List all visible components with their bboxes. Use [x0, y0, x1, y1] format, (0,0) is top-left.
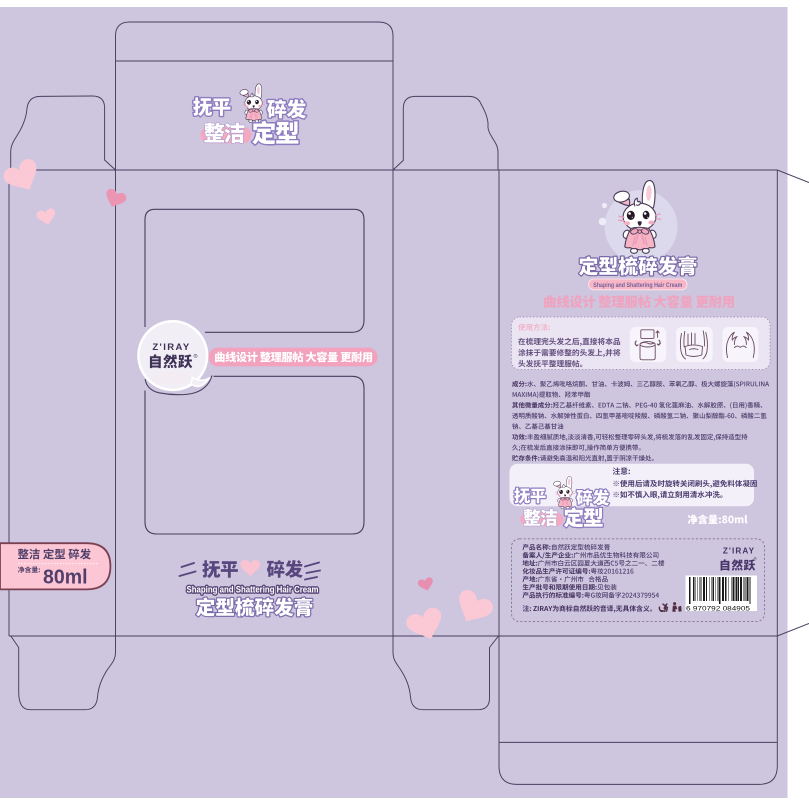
svg-text:80ml: 80ml [43, 565, 88, 588]
svg-text:®: ® [194, 353, 198, 360]
svg-text:Shaping and Shattering Hair Cr: Shaping and Shattering Hair Cream [593, 282, 682, 289]
svg-text:Z'IRAY: Z'IRAY [723, 546, 755, 555]
svg-text:Shaping and Shattering Hair Cr: Shaping and Shattering Hair Cream [187, 585, 319, 595]
svg-text:Z'IRAY: Z'IRAY [152, 342, 190, 353]
svg-text:6 970792 084905: 6 970792 084905 [686, 605, 750, 612]
